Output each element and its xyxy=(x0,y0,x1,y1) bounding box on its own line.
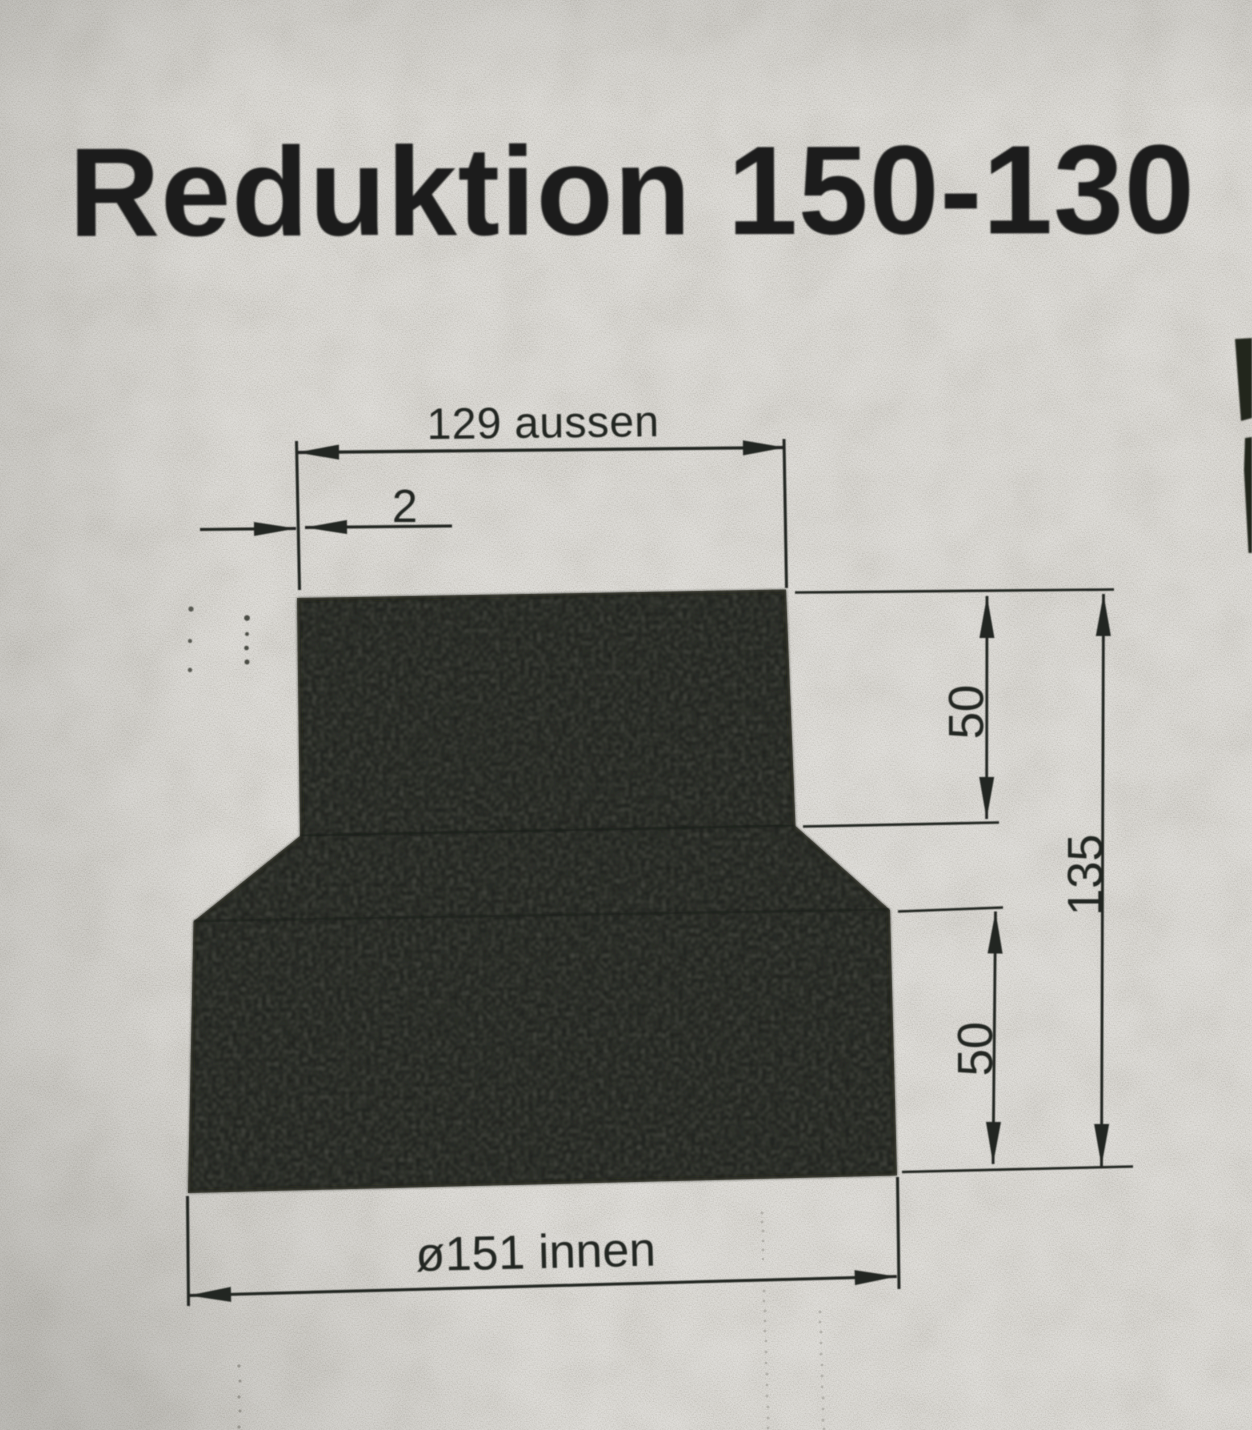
svg-text:2: 2 xyxy=(392,480,418,532)
svg-text:129 aussen: 129 aussen xyxy=(427,397,660,449)
svg-text:50: 50 xyxy=(949,1022,1003,1077)
svg-text:ø151 innen: ø151 innen xyxy=(415,1224,656,1282)
svg-text:50: 50 xyxy=(940,685,994,740)
svg-text:135: 135 xyxy=(1059,834,1113,916)
svg-text:Reduktion 150-130: Reduktion 150-130 xyxy=(69,119,1196,263)
